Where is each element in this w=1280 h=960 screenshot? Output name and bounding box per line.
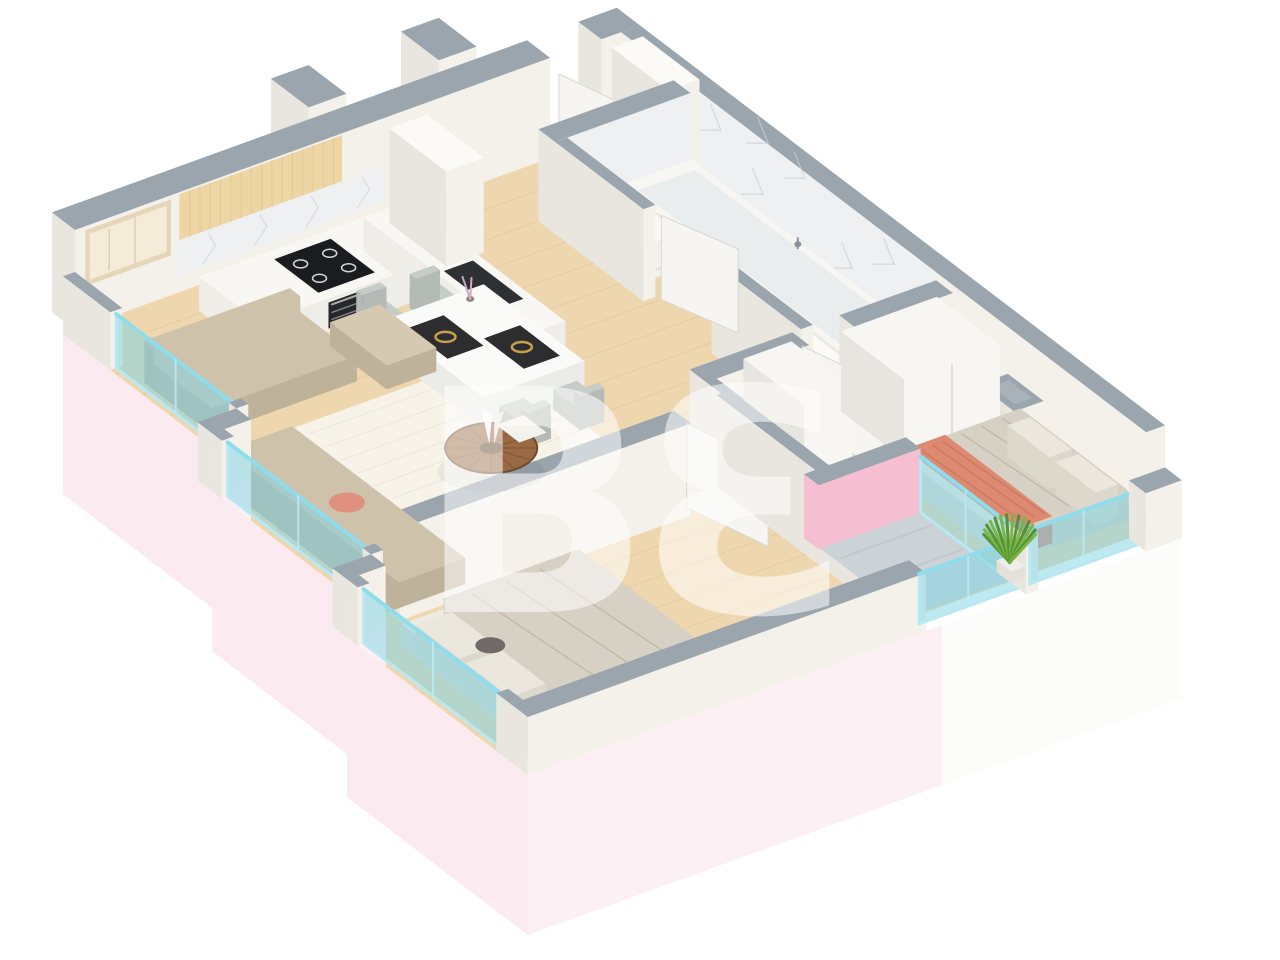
bathroom-north-wall: [538, 129, 555, 234]
floor-plan-3d-render: BƐ: [0, 0, 1280, 960]
fridge-column: [446, 158, 484, 267]
floor-plan-scene: BƐ: [0, 0, 1280, 960]
pink-cushion: [329, 493, 365, 513]
watermark-logo: BƐ: [416, 325, 840, 686]
